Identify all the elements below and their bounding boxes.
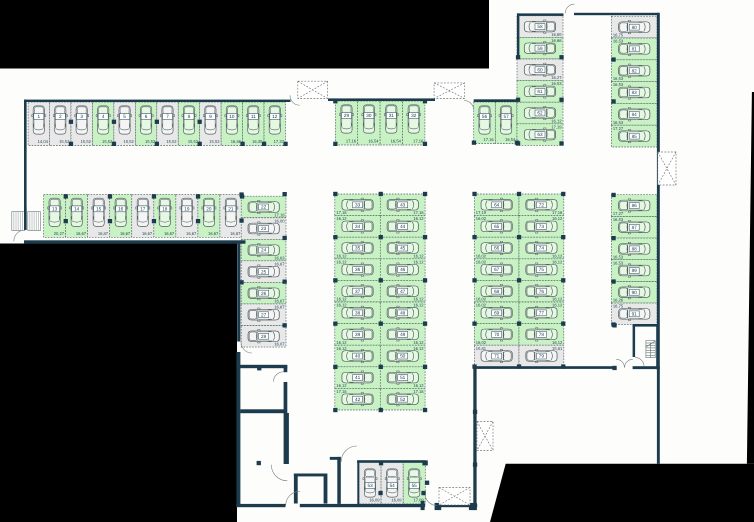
svg-text:14: 14 xyxy=(74,207,80,212)
svg-text:43: 43 xyxy=(400,203,406,208)
svg-text:16,66: 16,66 xyxy=(551,38,562,43)
svg-text:16,26: 16,26 xyxy=(613,298,624,303)
svg-text:24: 24 xyxy=(261,248,267,253)
svg-text:16,12: 16,12 xyxy=(552,297,563,302)
svg-text:16,54: 16,54 xyxy=(391,139,402,144)
svg-text:58: 58 xyxy=(537,24,543,29)
svg-text:16,65: 16,65 xyxy=(551,32,562,37)
svg-text:7: 7 xyxy=(166,114,169,119)
svg-text:74: 74 xyxy=(539,246,545,251)
svg-text:35: 35 xyxy=(355,246,361,251)
svg-text:15,52: 15,52 xyxy=(145,139,156,144)
svg-text:79: 79 xyxy=(539,354,545,359)
svg-text:16,02: 16,02 xyxy=(476,216,487,221)
svg-text:80: 80 xyxy=(632,25,638,30)
svg-text:31: 31 xyxy=(389,113,395,118)
svg-text:84: 84 xyxy=(632,112,638,117)
svg-text:16,09: 16,09 xyxy=(369,498,380,503)
svg-text:27: 27 xyxy=(261,312,267,317)
svg-text:75: 75 xyxy=(539,267,545,272)
svg-text:55: 55 xyxy=(412,483,418,488)
svg-text:17,16: 17,16 xyxy=(413,139,424,144)
svg-text:15,52: 15,52 xyxy=(102,139,113,144)
svg-text:2: 2 xyxy=(59,114,62,119)
svg-text:16,53: 16,53 xyxy=(613,39,624,44)
svg-text:40: 40 xyxy=(355,354,361,359)
svg-text:16,67: 16,67 xyxy=(186,231,197,236)
svg-text:50: 50 xyxy=(400,354,406,359)
svg-text:16,12: 16,12 xyxy=(413,303,424,308)
svg-text:76: 76 xyxy=(539,289,545,294)
svg-text:90: 90 xyxy=(632,290,638,295)
svg-text:16,02: 16,02 xyxy=(476,303,487,308)
svg-text:16,87: 16,87 xyxy=(230,231,241,236)
svg-text:11: 11 xyxy=(251,114,256,119)
svg-text:71: 71 xyxy=(494,354,500,359)
svg-text:89: 89 xyxy=(632,268,638,273)
svg-text:16,67: 16,67 xyxy=(142,231,153,236)
svg-text:16,12: 16,12 xyxy=(552,340,563,345)
svg-text:52: 52 xyxy=(400,397,406,402)
svg-text:17,16: 17,16 xyxy=(346,139,357,144)
svg-text:16,09: 16,09 xyxy=(391,498,402,503)
svg-text:16,12: 16,12 xyxy=(413,346,424,351)
svg-text:18: 18 xyxy=(162,207,168,212)
svg-text:61: 61 xyxy=(537,89,543,94)
svg-text:17,18: 17,18 xyxy=(336,210,347,215)
svg-text:77: 77 xyxy=(539,310,545,315)
svg-text:32: 32 xyxy=(411,113,417,118)
svg-text:15,52: 15,52 xyxy=(81,139,92,144)
svg-text:67: 67 xyxy=(494,267,500,272)
svg-text:66: 66 xyxy=(494,246,500,251)
svg-text:16,67: 16,67 xyxy=(274,305,285,310)
svg-text:54: 54 xyxy=(390,483,396,488)
svg-text:10: 10 xyxy=(229,114,235,119)
svg-text:16,12: 16,12 xyxy=(413,297,424,302)
svg-text:17,37: 17,37 xyxy=(274,139,285,144)
svg-text:15,52: 15,52 xyxy=(124,139,135,144)
svg-text:16,53: 16,53 xyxy=(613,254,624,259)
svg-text:16,12: 16,12 xyxy=(336,340,347,345)
svg-text:63: 63 xyxy=(537,132,543,137)
svg-text:16,53: 16,53 xyxy=(551,81,562,86)
svg-text:91: 91 xyxy=(632,312,638,317)
svg-text:15,52: 15,52 xyxy=(59,139,70,144)
svg-text:16,12: 16,12 xyxy=(552,216,563,221)
svg-text:19: 19 xyxy=(184,207,190,212)
svg-text:16,67: 16,67 xyxy=(120,231,131,236)
svg-text:16,12: 16,12 xyxy=(552,303,563,308)
svg-text:88: 88 xyxy=(632,247,638,252)
svg-text:17,19: 17,19 xyxy=(476,210,487,215)
svg-text:16,12: 16,12 xyxy=(413,340,424,345)
svg-text:3: 3 xyxy=(80,114,83,119)
svg-text:12: 12 xyxy=(272,114,278,119)
svg-text:49: 49 xyxy=(400,332,406,337)
svg-text:29: 29 xyxy=(344,113,350,118)
svg-text:16,12: 16,12 xyxy=(413,216,424,221)
svg-text:15,52: 15,52 xyxy=(166,139,177,144)
svg-text:16,67: 16,67 xyxy=(76,231,87,236)
svg-text:16,87: 16,87 xyxy=(98,231,109,236)
svg-text:16,67: 16,67 xyxy=(208,231,219,236)
svg-text:14,04: 14,04 xyxy=(38,139,49,144)
svg-text:16,75: 16,75 xyxy=(613,304,624,309)
svg-text:17,19: 17,19 xyxy=(551,124,562,129)
svg-text:16,12: 16,12 xyxy=(336,383,347,388)
svg-text:15,81: 15,81 xyxy=(552,346,563,351)
svg-text:26: 26 xyxy=(261,291,267,296)
svg-text:16,12: 16,12 xyxy=(336,297,347,302)
svg-text:73: 73 xyxy=(539,224,545,229)
svg-text:37: 37 xyxy=(355,289,361,294)
svg-text:22: 22 xyxy=(261,205,267,210)
svg-text:17,27: 17,27 xyxy=(613,211,624,216)
svg-text:1: 1 xyxy=(37,114,40,119)
svg-text:46: 46 xyxy=(400,267,406,272)
svg-text:86: 86 xyxy=(632,203,638,208)
svg-text:16,67: 16,67 xyxy=(164,231,175,236)
svg-text:47: 47 xyxy=(400,289,406,294)
svg-text:60: 60 xyxy=(537,68,543,73)
svg-text:16,54: 16,54 xyxy=(505,137,516,142)
svg-text:56: 56 xyxy=(482,114,488,119)
svg-text:20: 20 xyxy=(206,207,212,212)
svg-text:16,02: 16,02 xyxy=(476,297,487,302)
svg-text:51: 51 xyxy=(400,375,406,380)
svg-text:16,53: 16,53 xyxy=(613,120,624,125)
svg-text:42: 42 xyxy=(355,397,361,402)
svg-text:68: 68 xyxy=(494,289,500,294)
svg-text:39: 39 xyxy=(355,332,361,337)
svg-text:83: 83 xyxy=(632,90,638,95)
svg-text:78: 78 xyxy=(539,332,545,337)
svg-text:25: 25 xyxy=(261,269,267,274)
svg-text:20,27: 20,27 xyxy=(54,231,65,236)
svg-text:87: 87 xyxy=(632,225,638,230)
svg-text:62: 62 xyxy=(537,111,543,116)
svg-text:41: 41 xyxy=(355,375,361,380)
svg-text:16,53: 16,53 xyxy=(613,76,624,81)
svg-text:16,12: 16,12 xyxy=(551,118,562,123)
svg-text:16,67: 16,67 xyxy=(274,262,285,267)
svg-text:16,12: 16,12 xyxy=(413,383,424,388)
svg-text:16,53: 16,53 xyxy=(613,260,624,265)
svg-text:16,75: 16,75 xyxy=(613,33,624,38)
svg-text:57: 57 xyxy=(503,114,509,119)
svg-text:34: 34 xyxy=(355,224,361,229)
svg-text:16,53: 16,53 xyxy=(613,82,624,87)
svg-text:17: 17 xyxy=(140,207,146,212)
svg-text:16,54: 16,54 xyxy=(368,139,379,144)
svg-text:69: 69 xyxy=(494,310,500,315)
svg-text:16: 16 xyxy=(118,207,124,212)
svg-text:16,67: 16,67 xyxy=(274,299,285,304)
svg-text:5: 5 xyxy=(123,114,126,119)
svg-text:21: 21 xyxy=(228,207,234,212)
svg-text:64: 64 xyxy=(494,203,500,208)
svg-text:16,12: 16,12 xyxy=(336,303,347,308)
svg-text:16,35: 16,35 xyxy=(252,139,263,144)
svg-text:16,12: 16,12 xyxy=(552,253,563,258)
svg-text:17,27: 17,27 xyxy=(613,126,624,131)
svg-text:81: 81 xyxy=(632,47,638,52)
svg-text:16,02: 16,02 xyxy=(476,253,487,258)
svg-text:17,18: 17,18 xyxy=(413,210,424,215)
svg-text:38: 38 xyxy=(355,310,361,315)
svg-text:30: 30 xyxy=(366,113,372,118)
svg-text:17,16: 17,16 xyxy=(483,137,494,142)
svg-text:16,63: 16,63 xyxy=(274,255,285,260)
svg-text:36: 36 xyxy=(355,267,361,272)
svg-text:13: 13 xyxy=(52,207,58,212)
svg-text:85: 85 xyxy=(632,134,638,139)
svg-text:8: 8 xyxy=(188,114,191,119)
svg-text:16,12: 16,12 xyxy=(413,259,424,264)
svg-text:16,07: 16,07 xyxy=(274,342,285,347)
svg-text:17,18: 17,18 xyxy=(413,389,424,394)
svg-text:16,12: 16,12 xyxy=(336,216,347,221)
svg-text:16,86: 16,86 xyxy=(231,139,242,144)
svg-text:15: 15 xyxy=(96,207,102,212)
svg-text:53: 53 xyxy=(367,483,373,488)
svg-text:16,02: 16,02 xyxy=(476,259,487,264)
svg-text:16,53: 16,53 xyxy=(613,217,624,222)
svg-text:33: 33 xyxy=(355,203,361,208)
svg-text:15,81: 15,81 xyxy=(476,346,487,351)
svg-text:72: 72 xyxy=(539,203,545,208)
svg-text:48: 48 xyxy=(400,310,406,315)
svg-text:17,18: 17,18 xyxy=(336,389,347,394)
svg-text:70: 70 xyxy=(494,332,500,337)
svg-text:15,52: 15,52 xyxy=(188,139,199,144)
svg-text:4: 4 xyxy=(102,114,105,119)
svg-text:17,16: 17,16 xyxy=(552,210,563,215)
svg-text:15,52: 15,52 xyxy=(209,139,220,144)
svg-text:45: 45 xyxy=(400,246,406,251)
svg-text:44: 44 xyxy=(400,224,406,229)
svg-text:23: 23 xyxy=(261,226,267,231)
svg-text:16,27: 16,27 xyxy=(551,75,562,80)
svg-text:59: 59 xyxy=(537,46,543,51)
svg-text:17,18: 17,18 xyxy=(274,212,285,217)
svg-text:16,12: 16,12 xyxy=(336,346,347,351)
svg-text:28: 28 xyxy=(261,334,267,339)
svg-text:16,12: 16,12 xyxy=(336,259,347,264)
svg-text:16,12: 16,12 xyxy=(336,253,347,258)
svg-text:16,02: 16,02 xyxy=(476,340,487,345)
svg-text:16,12: 16,12 xyxy=(552,259,563,264)
svg-text:65: 65 xyxy=(494,224,500,229)
svg-text:16,00: 16,00 xyxy=(274,218,285,223)
svg-text:16,12: 16,12 xyxy=(413,253,424,258)
svg-text:9: 9 xyxy=(209,114,212,119)
svg-text:82: 82 xyxy=(632,68,638,73)
svg-text:6: 6 xyxy=(145,114,148,119)
